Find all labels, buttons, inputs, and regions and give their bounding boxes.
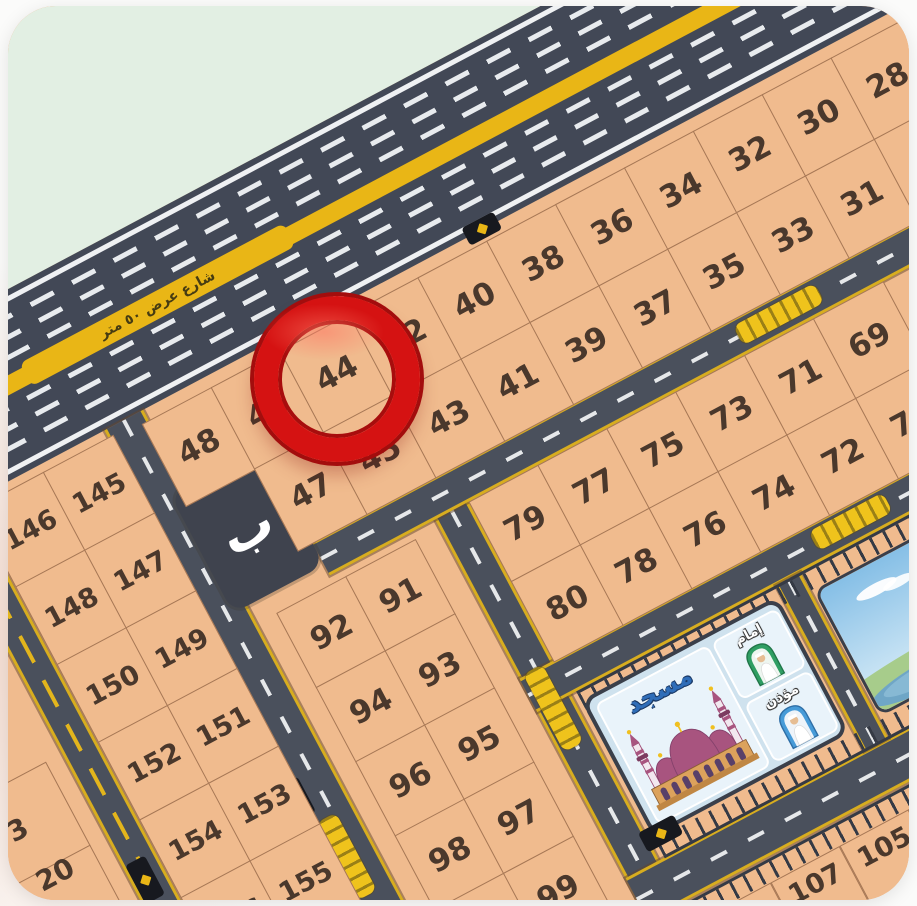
screenshot-canvas: شارع عرض ٥٠ متر ب مسجد <box>0 0 917 906</box>
rotated-map-world: شارع عرض ٥٠ متر ب مسجد <box>8 6 909 900</box>
highlight-circle-plot-44 <box>254 296 420 462</box>
plot-map-image: شارع عرض ٥٠ متر ب مسجد <box>8 6 909 900</box>
